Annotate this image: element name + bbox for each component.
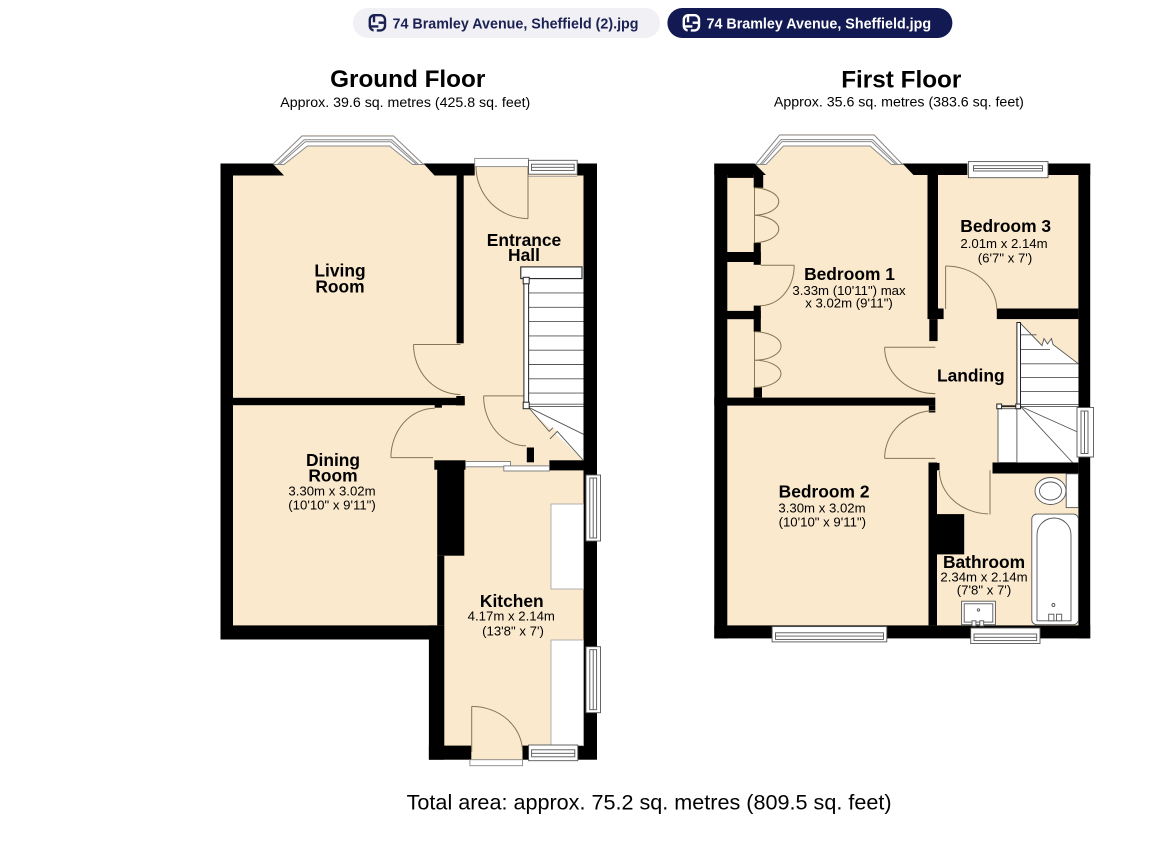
svg-text:Bedroom 3: Bedroom 3 [960, 216, 1051, 236]
svg-text:Total area: approx. 75.2 sq. m: Total area: approx. 75.2 sq. metres (809… [407, 789, 892, 814]
svg-text:Bedroom 2: Bedroom 2 [779, 482, 870, 502]
svg-text:x 3.02m (9'11"): x 3.02m (9'11") [805, 295, 893, 310]
svg-text:(10'10" x 9'11"): (10'10" x 9'11") [779, 514, 866, 529]
svg-text:(10'10" x 9'11"): (10'10" x 9'11") [288, 497, 375, 512]
svg-text:(7'8" x 7'): (7'8" x 7') [957, 583, 1011, 598]
svg-text:First Floor: First Floor [841, 66, 962, 93]
svg-text:Room: Room [308, 465, 357, 485]
svg-text:3.30m x 3.02m: 3.30m x 3.02m [778, 500, 865, 515]
svg-text:Room: Room [315, 277, 364, 297]
svg-text:3.30m x 3.02m: 3.30m x 3.02m [288, 483, 375, 498]
svg-text:74 Bramley Avenue, Sheffield.j: 74 Bramley Avenue, Sheffield.jpg [707, 17, 932, 33]
svg-text:74 Bramley Avenue, Sheffield (: 74 Bramley Avenue, Sheffield (2).jpg [393, 17, 639, 33]
svg-text:Landing: Landing [937, 366, 1005, 386]
svg-text:(6'7" x 7'): (6'7" x 7') [978, 250, 1032, 265]
svg-text:Ground Floor: Ground Floor [330, 66, 486, 93]
svg-text:2.01m x 2.14m: 2.01m x 2.14m [960, 236, 1047, 251]
svg-text:Hall: Hall [508, 245, 540, 265]
svg-text:Bedroom 1: Bedroom 1 [804, 264, 895, 284]
svg-text:4.17m x 2.14m: 4.17m x 2.14m [468, 608, 555, 623]
svg-text:(13'8" x 7'): (13'8" x 7') [482, 624, 544, 639]
svg-text:Approx. 39.6 sq. metres (425.8: Approx. 39.6 sq. metres (425.8 sq. feet) [280, 95, 530, 111]
svg-text:Approx. 35.6 sq. metres (383.6: Approx. 35.6 sq. metres (383.6 sq. feet) [774, 95, 1024, 111]
